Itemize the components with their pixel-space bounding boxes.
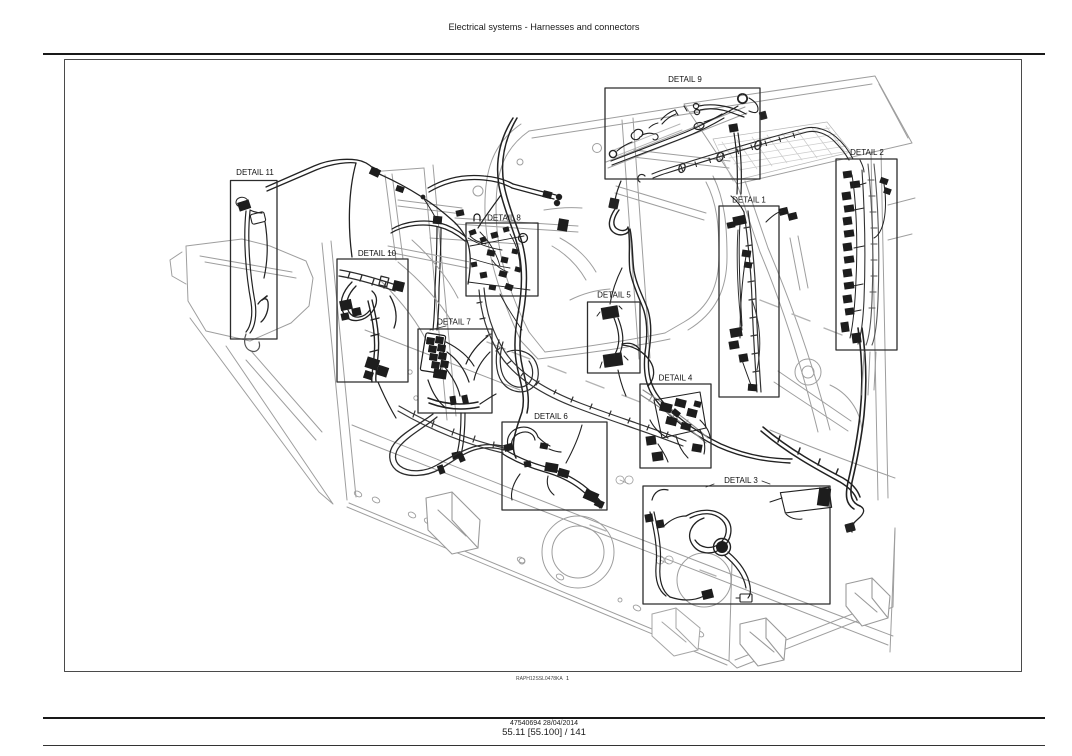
svg-text:DETAIL 5: DETAIL 5 bbox=[597, 291, 631, 300]
svg-text:DETAIL 10: DETAIL 10 bbox=[358, 249, 397, 258]
svg-text:DETAIL 7: DETAIL 7 bbox=[437, 318, 471, 327]
svg-text:DETAIL 6: DETAIL 6 bbox=[534, 412, 568, 421]
svg-text:DETAIL 11: DETAIL 11 bbox=[236, 168, 274, 177]
svg-text:DETAIL 4: DETAIL 4 bbox=[659, 374, 693, 383]
svg-text:DETAIL 2: DETAIL 2 bbox=[850, 148, 884, 157]
svg-text:DETAIL 9: DETAIL 9 bbox=[668, 75, 702, 84]
svg-text:DETAIL 8: DETAIL 8 bbox=[487, 214, 521, 223]
svg-text:DETAIL 1: DETAIL 1 bbox=[732, 196, 766, 205]
svg-text:DETAIL 3: DETAIL 3 bbox=[724, 476, 758, 485]
